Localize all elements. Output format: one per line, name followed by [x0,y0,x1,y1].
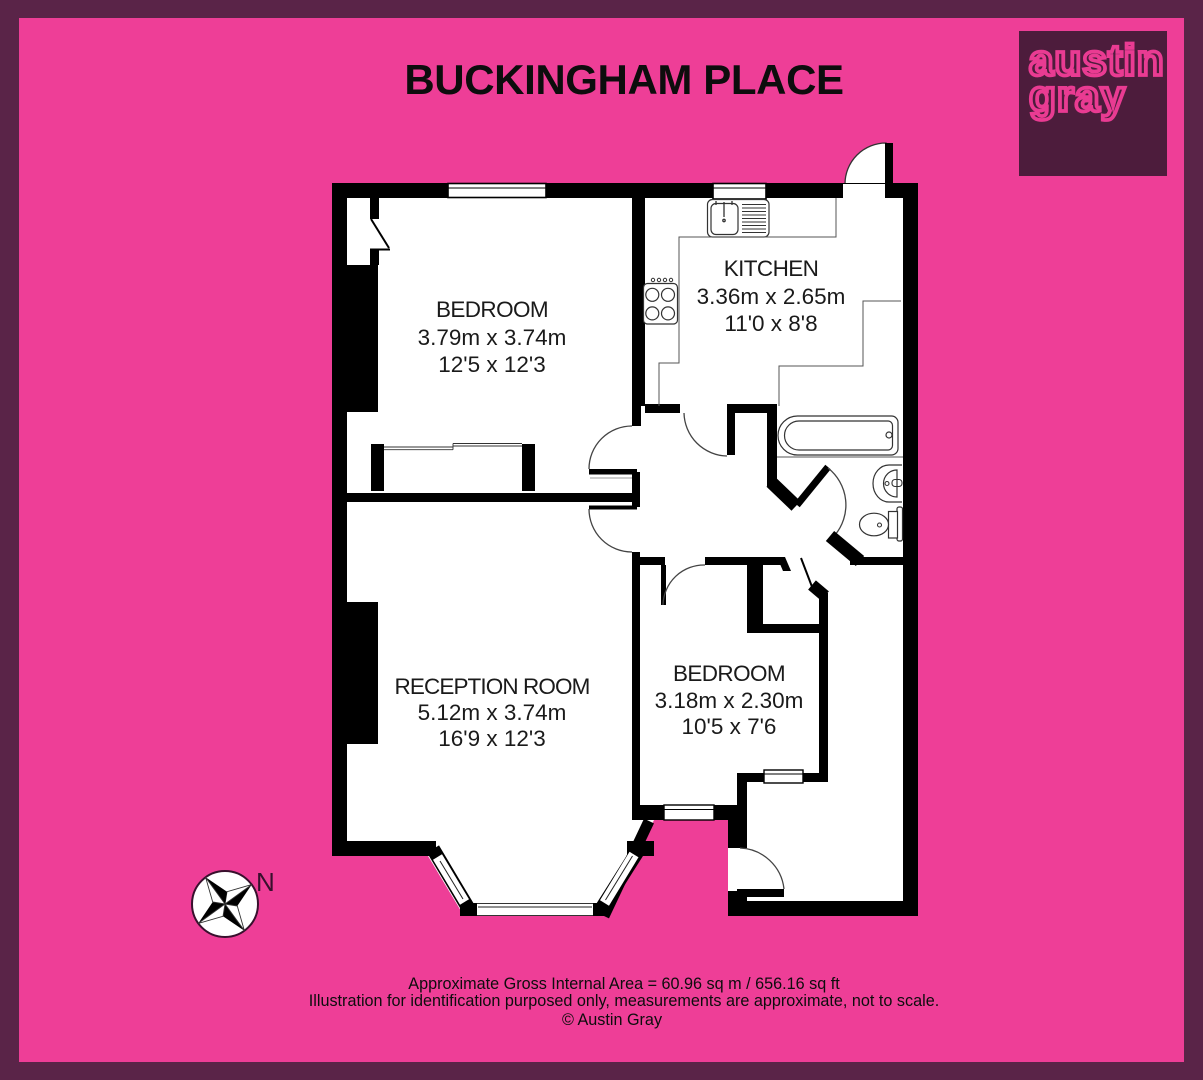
svg-text:3.79m x 3.74m: 3.79m x 3.74m [418,325,567,350]
svg-text:BEDROOM: BEDROOM [673,661,785,686]
svg-text:5.12m x 3.74m: 5.12m x 3.74m [418,700,567,725]
svg-text:10'5 x 7'6: 10'5 x 7'6 [682,714,777,739]
svg-text:3.36m x 2.65m: 3.36m x 2.65m [697,284,846,309]
svg-text:N: N [256,867,275,897]
svg-text:12'5 x 12'3: 12'5 x 12'3 [438,352,545,377]
svg-text:16'9 x 12'3: 16'9 x 12'3 [438,726,545,751]
svg-text:3.18m x 2.30m: 3.18m x 2.30m [655,688,804,713]
svg-text:RECEPTION ROOM: RECEPTION ROOM [395,674,590,699]
svg-text:11'0 x 8'8: 11'0 x 8'8 [724,311,817,336]
svg-text:KITCHEN: KITCHEN [724,256,819,281]
svg-text:BEDROOM: BEDROOM [436,297,548,322]
